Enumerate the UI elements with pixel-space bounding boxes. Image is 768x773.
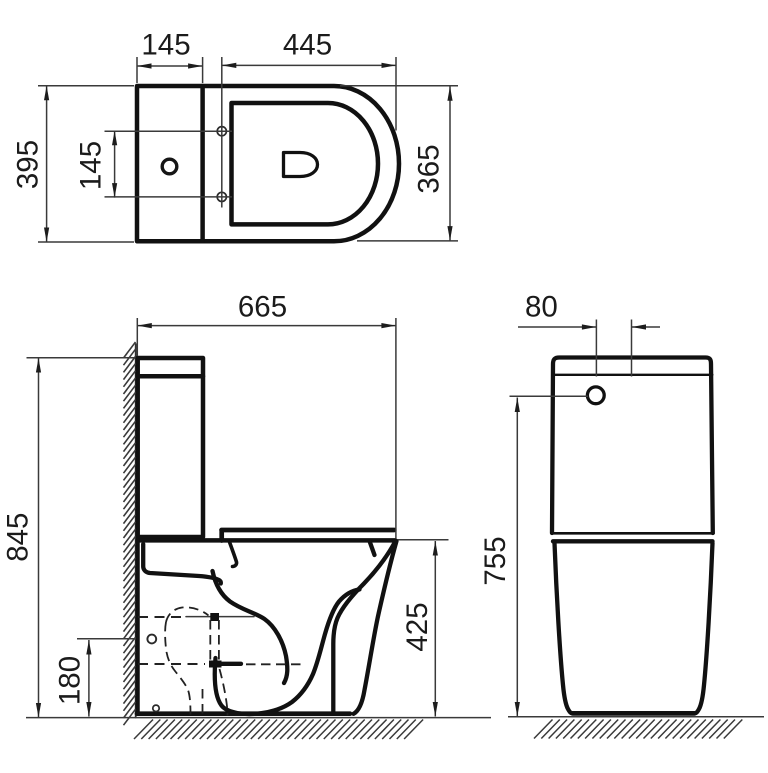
- svg-text:80: 80: [525, 291, 558, 324]
- svg-text:365: 365: [413, 144, 446, 193]
- svg-text:145: 145: [141, 29, 190, 62]
- svg-text:845: 845: [1, 513, 34, 562]
- svg-text:145: 145: [74, 141, 107, 190]
- svg-text:180: 180: [54, 656, 87, 705]
- svg-text:425: 425: [401, 602, 434, 651]
- svg-text:395: 395: [11, 140, 44, 189]
- svg-text:755: 755: [479, 536, 512, 585]
- svg-text:445: 445: [283, 29, 332, 62]
- svg-text:665: 665: [238, 291, 287, 324]
